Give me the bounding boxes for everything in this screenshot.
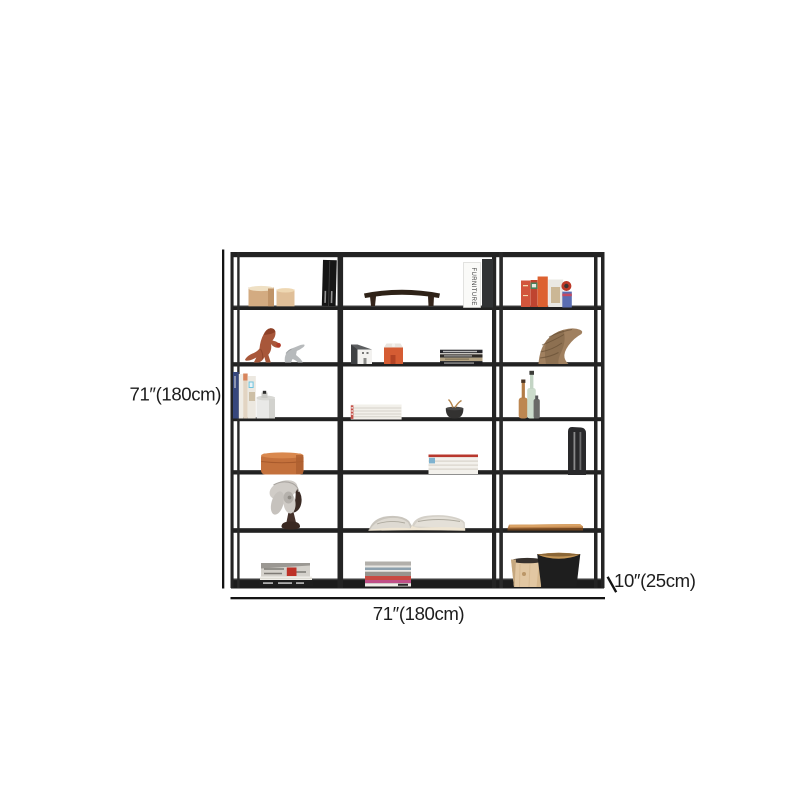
svg-text:10″(25cm): 10″(25cm) xyxy=(614,570,696,591)
svg-text:71″(180cm): 71″(180cm) xyxy=(373,603,465,624)
svg-text:71″(180cm): 71″(180cm) xyxy=(130,384,222,405)
svg-text:FURNITURE: FURNITURE xyxy=(470,268,476,306)
